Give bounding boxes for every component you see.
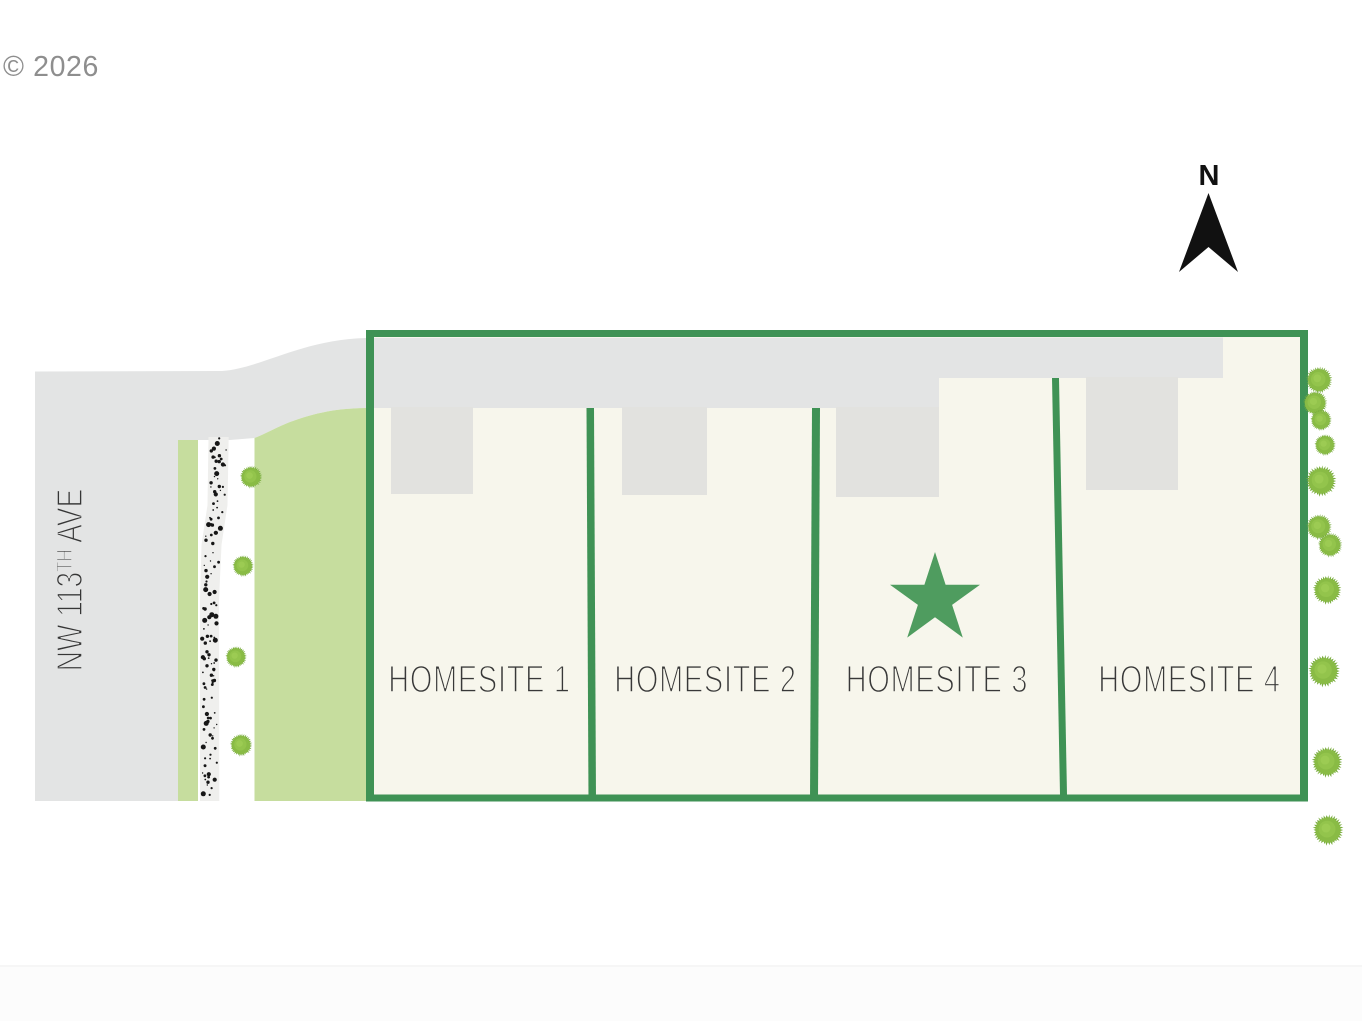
svg-text:NW 113TH AVE: NW 113TH AVE bbox=[50, 489, 90, 672]
svg-text:HOMESITE 3: HOMESITE 3 bbox=[846, 658, 1028, 701]
svg-text:HOMESITE 1: HOMESITE 1 bbox=[388, 658, 570, 701]
svg-text:© 2026: © 2026 bbox=[3, 51, 99, 83]
svg-text:HOMESITE 2: HOMESITE 2 bbox=[614, 658, 796, 701]
svg-text:HOMESITE 4: HOMESITE 4 bbox=[1098, 658, 1280, 701]
svg-text:N: N bbox=[1199, 160, 1220, 192]
